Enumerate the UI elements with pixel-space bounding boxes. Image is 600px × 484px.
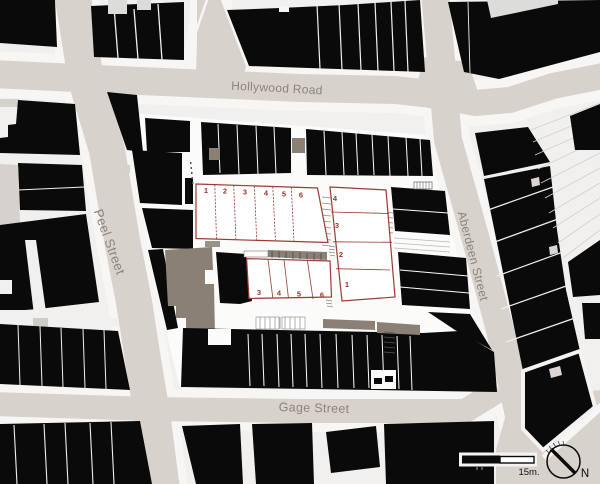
svg-text:6: 6	[320, 291, 324, 300]
svg-text:5: 5	[282, 190, 286, 199]
svg-text:1: 1	[345, 280, 349, 289]
svg-text:3: 3	[243, 188, 247, 197]
svg-text:3: 3	[335, 221, 339, 230]
svg-text:5: 5	[297, 290, 301, 299]
svg-text:2: 2	[223, 187, 227, 196]
svg-text:1: 1	[204, 186, 208, 195]
svg-text:3: 3	[257, 288, 261, 297]
svg-text:15m.: 15m.	[518, 467, 539, 478]
svg-text:2: 2	[339, 250, 343, 259]
svg-text:N: N	[581, 468, 589, 480]
svg-text:Gage Street: Gage Street	[279, 400, 350, 416]
svg-text:6: 6	[299, 191, 303, 200]
